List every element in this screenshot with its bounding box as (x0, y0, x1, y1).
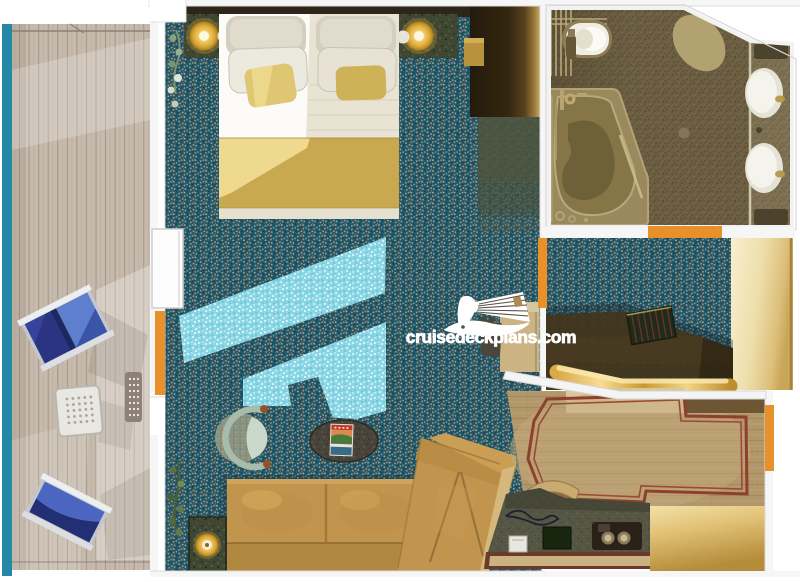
svg-text:cruisedeckplans.com: cruisedeckplans.com (406, 327, 576, 347)
